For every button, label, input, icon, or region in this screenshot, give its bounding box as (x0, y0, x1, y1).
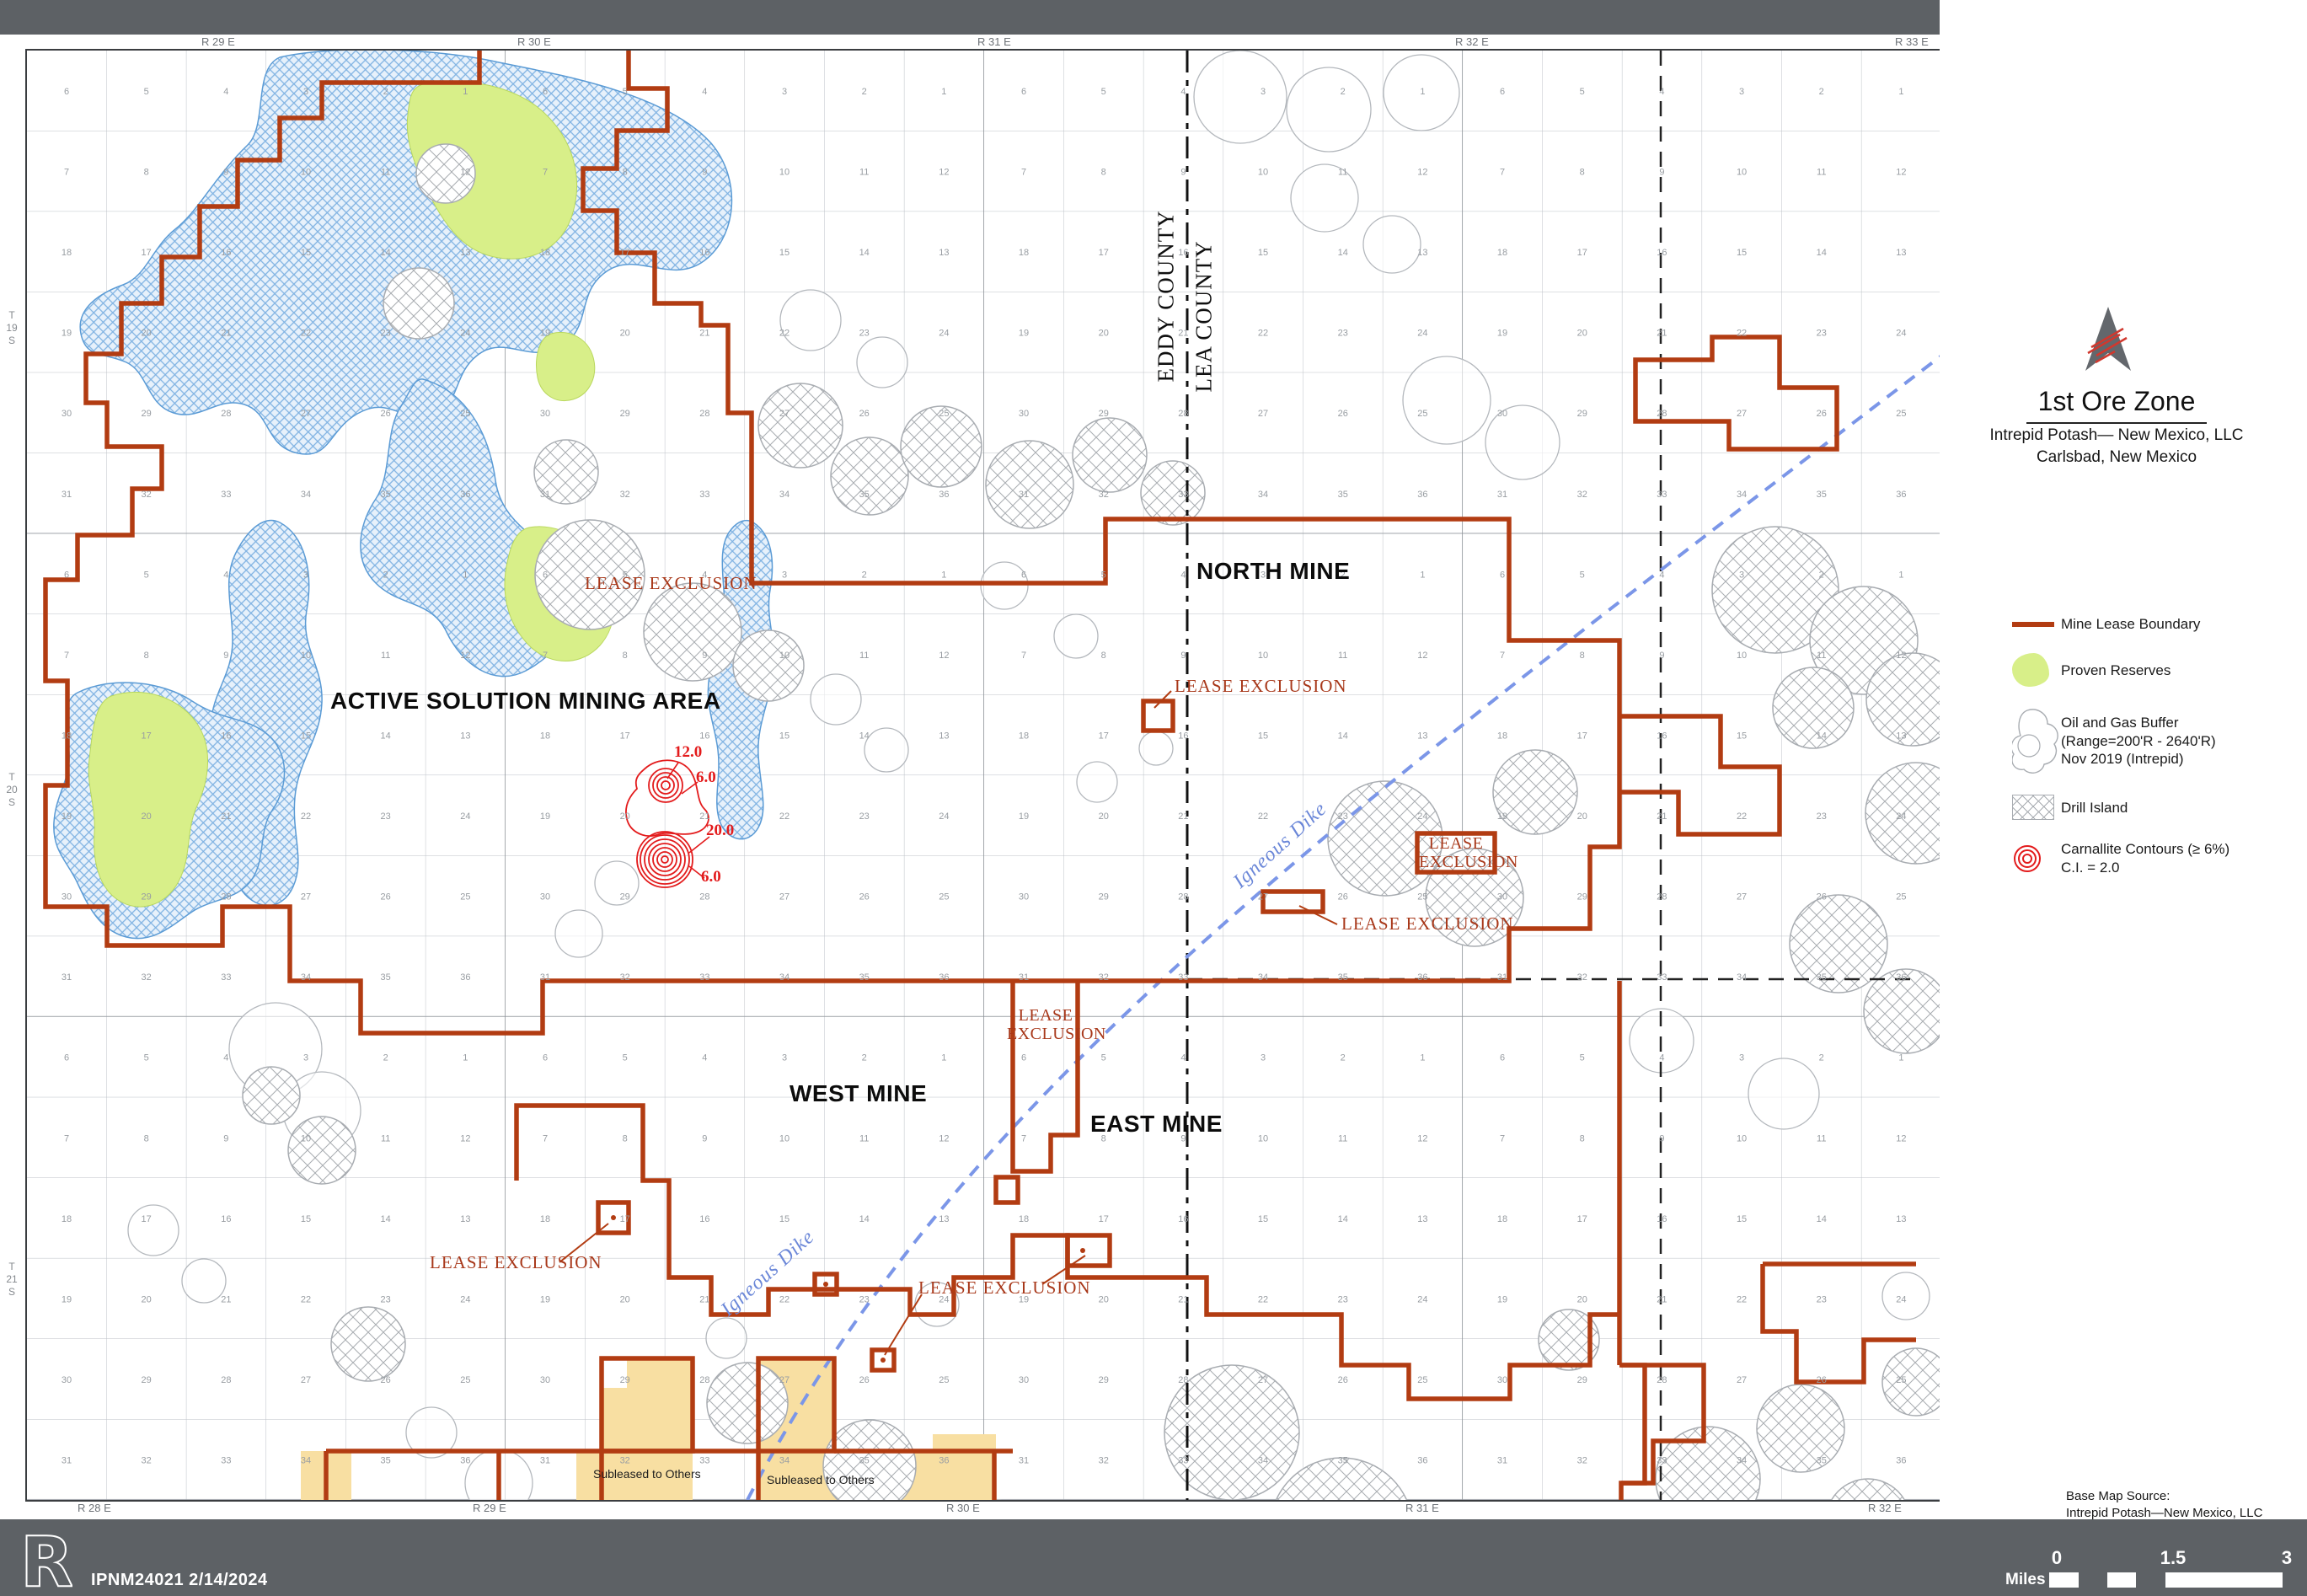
section-number: 34 (301, 490, 311, 500)
section-number: 36 (460, 972, 470, 983)
section-number: 22 (779, 1294, 790, 1304)
section-number: 31 (1497, 1456, 1507, 1466)
section-number: 26 (381, 409, 391, 419)
section-number: 30 (1019, 409, 1029, 419)
section-number: 20 (620, 1294, 630, 1304)
section-number: 22 (301, 329, 311, 339)
range-label: R 29 E (201, 35, 235, 48)
section-number: 21 (221, 1294, 231, 1304)
section-number: 5 (1101, 1053, 1106, 1063)
section-number: 27 (779, 1375, 790, 1385)
section-number: 33 (1657, 972, 1667, 983)
legend-item-drill-island: Drill Island (2012, 795, 2290, 820)
section-number: 28 (1657, 892, 1667, 902)
section-number: 11 (1817, 168, 1826, 178)
section-number: 16 (1657, 1214, 1667, 1224)
section-number: 25 (1417, 1375, 1427, 1385)
section-number: 11 (381, 168, 390, 178)
section-number: 10 (1258, 168, 1268, 178)
section-number: 12 (1417, 651, 1427, 661)
section-number: 29 (1099, 409, 1109, 419)
section-number: 5 (623, 1053, 628, 1063)
map-title: 1st Ore Zone (1940, 386, 2294, 424)
section-number: 32 (1577, 972, 1587, 983)
section-number: 36 (939, 490, 949, 500)
section-number: 22 (779, 811, 790, 822)
section-number: 23 (859, 329, 870, 339)
section-number: 10 (1258, 1133, 1268, 1143)
base-map-source-line1: Base Map Source: (2066, 1488, 2262, 1505)
section-number: 25 (1896, 1375, 1906, 1385)
section-number: 15 (1258, 248, 1268, 258)
section-number: 36 (1417, 490, 1427, 500)
section-number: 31 (62, 972, 72, 983)
section-number: 35 (1338, 1456, 1348, 1466)
section-number: 12 (1417, 1133, 1427, 1143)
section-number: 21 (221, 329, 231, 339)
section-number: 29 (142, 409, 152, 419)
section-number: 16 (699, 731, 709, 741)
range-label: R 32 E (1868, 1502, 1902, 1514)
range-label: R 29 E (473, 1502, 506, 1514)
section-number: 18 (1019, 1214, 1029, 1224)
section-number: 17 (620, 731, 630, 741)
label-lease-exclusion-5: LEASE EXCLUSION (1007, 1007, 1084, 1043)
section-number: 13 (1417, 248, 1427, 258)
section-number: 30 (1497, 892, 1507, 902)
oil-gas-buffer (1054, 614, 1098, 658)
section-number: 23 (381, 811, 391, 822)
section-number: 17 (620, 248, 630, 258)
legend: Mine Lease Boundary Proven Reserves Oil … (2012, 615, 2290, 897)
section-number: 20 (1099, 329, 1109, 339)
section-number: 35 (1338, 972, 1348, 983)
section-number: 23 (1338, 811, 1348, 822)
section-number: 22 (301, 1294, 311, 1304)
section-number: 18 (1497, 731, 1507, 741)
section-number: 20 (1099, 1294, 1109, 1304)
section-number: 10 (1737, 1133, 1747, 1143)
section-number: 12 (1417, 168, 1427, 178)
section-number: 24 (939, 811, 949, 822)
section-number: 34 (1737, 1456, 1747, 1466)
legend-label-line: (Range=200'R - 2640'R) (2061, 732, 2216, 750)
section-number: 29 (1577, 892, 1587, 902)
map-sheet: R 29 ER 30 ER 31 ER 32 ER 33 E R 28 ER 2… (0, 0, 2307, 1596)
section-number: 21 (1657, 811, 1667, 822)
section-number: 30 (1019, 892, 1029, 902)
section-number: 27 (301, 1375, 311, 1385)
section-number: 6 (64, 1053, 69, 1063)
section-number: 16 (1657, 248, 1667, 258)
carnallite-swatch (2012, 844, 2061, 874)
section-number: 4 (1180, 570, 1186, 580)
section-number: 9 (223, 168, 228, 178)
section-number: 5 (144, 87, 149, 97)
section-number: 36 (1896, 490, 1906, 500)
section-number: 14 (1817, 1214, 1827, 1224)
section-number: 31 (1019, 972, 1029, 983)
section-number: 2 (1341, 1053, 1346, 1063)
section-number: 7 (543, 1133, 548, 1143)
section-number: 9 (1180, 651, 1186, 661)
section-number: 7 (64, 168, 69, 178)
section-number: 27 (1737, 892, 1747, 902)
section-number: 6 (1021, 1053, 1026, 1063)
section-number: 16 (1178, 1214, 1188, 1224)
oil-gas-buffer (811, 674, 861, 725)
bottom-border-bar (0, 1519, 2307, 1596)
section-number: 33 (221, 490, 231, 500)
section-number: 27 (301, 409, 311, 419)
section-number: 4 (223, 1053, 228, 1063)
section-number: 32 (620, 490, 630, 500)
section-number: 31 (540, 972, 550, 983)
section-number: 8 (1101, 168, 1106, 178)
section-number: 20 (620, 329, 630, 339)
drill-island (1773, 667, 1854, 748)
label-lease-exclusion-2: LEASE EXCLUSION (1175, 676, 1347, 697)
section-number: 32 (142, 490, 152, 500)
section-number: 20 (620, 811, 630, 822)
section-number: 29 (620, 892, 630, 902)
oil-gas-buffer (128, 1205, 179, 1256)
section-number: 24 (460, 1294, 470, 1304)
section-number: 8 (1580, 1133, 1585, 1143)
mine-lease-boundary-swatch (2012, 622, 2061, 627)
lease-exclusion-line1: LEASE (1419, 835, 1493, 854)
legend-label: Mine Lease Boundary (2061, 615, 2200, 633)
section-number: 29 (1577, 409, 1587, 419)
section-number: 32 (1099, 1456, 1109, 1466)
section-number: 31 (1019, 1456, 1029, 1466)
section-number: 19 (62, 1294, 72, 1304)
drill-island (1882, 1348, 1941, 1416)
section-number: 10 (779, 651, 790, 661)
section-number: 30 (1019, 1375, 1029, 1385)
section-number: 23 (1338, 329, 1348, 339)
section-number: 30 (540, 892, 550, 902)
section-number: 16 (221, 1214, 231, 1224)
oil-gas-buffer-swatch (2012, 707, 2061, 774)
section-number: 23 (1817, 1294, 1827, 1304)
section-number: 27 (1258, 409, 1268, 419)
section-number: 2 (1819, 87, 1824, 97)
section-number: 17 (142, 248, 152, 258)
section-number: 11 (381, 1133, 390, 1143)
oil-gas-buffer (1194, 51, 1287, 143)
section-number: 28 (221, 1375, 231, 1385)
section-number: 18 (1019, 731, 1029, 741)
section-number: 36 (1896, 1456, 1906, 1466)
section-number: 27 (779, 409, 790, 419)
label-carnallite-20: 20.0 (706, 822, 734, 840)
section-number: 32 (142, 972, 152, 983)
section-number: 36 (939, 1456, 949, 1466)
section-number: 3 (303, 87, 308, 97)
section-number: 12 (939, 651, 949, 661)
section-number: 21 (699, 811, 709, 822)
range-labels-bottom: R 28 ER 29 ER 30 ER 31 ER 32 E (25, 1502, 1940, 1515)
section-number: 6 (1021, 570, 1026, 580)
section-number: 19 (62, 329, 72, 339)
section-number: 14 (859, 731, 870, 741)
section-number: 28 (1178, 892, 1188, 902)
range-labels-top: R 29 ER 30 ER 31 ER 32 ER 33 E (25, 35, 1940, 48)
section-number: 22 (1737, 811, 1747, 822)
section-number: 1 (1898, 1053, 1903, 1063)
section-number: 30 (540, 1375, 550, 1385)
drill-island (1790, 895, 1887, 993)
section-number: 9 (1659, 651, 1664, 661)
section-number: 1 (1898, 570, 1903, 580)
section-number: 21 (1657, 329, 1667, 339)
section-number: 18 (1497, 1214, 1507, 1224)
section-number: 20 (142, 1294, 152, 1304)
label-subleased-2: Subleased to Others (767, 1473, 875, 1486)
section-number: 12 (1896, 651, 1906, 661)
section-number: 7 (1021, 168, 1026, 178)
label-active-solution-mining-area: ACTIVE SOLUTION MINING AREA (330, 688, 721, 715)
section-number: 6 (543, 87, 548, 97)
section-number: 33 (1178, 972, 1188, 983)
section-number: 36 (460, 1456, 470, 1466)
section-number: 6 (1021, 87, 1026, 97)
oil-gas-buffer (1291, 164, 1358, 232)
section-number: 10 (779, 168, 790, 178)
section-number: 5 (144, 1053, 149, 1063)
legend-item-oil-gas-buffer: Oil and Gas Buffer (Range=200'R - 2640'R… (2012, 707, 2290, 774)
section-number: 8 (623, 1133, 628, 1143)
section-number: 13 (939, 1214, 949, 1224)
drill-island (644, 583, 741, 681)
section-number: 24 (1417, 1294, 1427, 1304)
drill-island (383, 268, 454, 339)
section-number: 3 (1261, 87, 1266, 97)
section-number: 35 (1338, 490, 1348, 500)
section-number: 34 (1258, 972, 1268, 983)
section-number: 26 (1817, 1375, 1827, 1385)
section-number: 18 (540, 731, 550, 741)
map-title-text: 1st Ore Zone (2026, 386, 2208, 424)
township-label: T19S (1, 309, 23, 347)
section-number: 12 (1896, 1133, 1906, 1143)
legend-label-line: Oil and Gas Buffer (2061, 714, 2216, 731)
section-number: 27 (1258, 1375, 1268, 1385)
drill-island (986, 441, 1073, 528)
section-number: 18 (1019, 248, 1029, 258)
section-number: 33 (699, 1456, 709, 1466)
section-number: 25 (460, 409, 470, 419)
section-number: 32 (1577, 490, 1587, 500)
section-number: 10 (1737, 168, 1747, 178)
section-number: 16 (1178, 731, 1188, 741)
section-number: 10 (1737, 651, 1747, 661)
section-number: 19 (540, 329, 550, 339)
section-number: 18 (62, 248, 72, 258)
section-number: 32 (1099, 972, 1109, 983)
section-number: 7 (1500, 1133, 1505, 1143)
label-carnallite-12: 12.0 (674, 743, 702, 762)
oil-gas-buffer (555, 910, 602, 957)
section-number: 34 (1258, 1456, 1268, 1466)
section-number: 12 (939, 1133, 949, 1143)
section-number: 13 (1896, 1214, 1906, 1224)
legend-item-carnallite: Carnallite Contours (≥ 6%) C.I. = 2.0 (2012, 840, 2290, 876)
oil-gas-buffer (182, 1259, 226, 1303)
oil-gas-buffer (1403, 356, 1491, 444)
section-number: 8 (1101, 651, 1106, 661)
section-number: 17 (1099, 731, 1109, 741)
section-number: 14 (1817, 248, 1827, 258)
section-number: 17 (1577, 731, 1587, 741)
section-number: 24 (1417, 329, 1427, 339)
section-number: 25 (460, 1375, 470, 1385)
section-number: 34 (779, 490, 790, 500)
section-number: 5 (1580, 1053, 1585, 1063)
section-number: 23 (1817, 811, 1827, 822)
section-number: 18 (1497, 248, 1507, 258)
section-number: 1 (1420, 570, 1425, 580)
section-number: 11 (1338, 168, 1347, 178)
section-number: 10 (301, 1133, 311, 1143)
section-number: 26 (381, 892, 391, 902)
section-number: 13 (460, 248, 470, 258)
section-number: 12 (939, 168, 949, 178)
section-number: 14 (381, 731, 391, 741)
section-number: 15 (301, 1214, 311, 1224)
legend-item-mine-lease-boundary: Mine Lease Boundary (2012, 615, 2290, 633)
section-number: 33 (1657, 490, 1667, 500)
section-number: 1 (1420, 1053, 1425, 1063)
section-number: 16 (221, 731, 231, 741)
range-label: R 28 E (78, 1502, 111, 1514)
section-number: 14 (1338, 1214, 1348, 1224)
section-number: 4 (223, 570, 228, 580)
range-label: R 31 E (977, 35, 1011, 48)
section-number: 25 (939, 892, 949, 902)
section-number: 35 (859, 972, 870, 983)
range-label: R 30 E (517, 35, 551, 48)
section-number: 7 (543, 168, 548, 178)
range-label: R 30 E (946, 1502, 980, 1514)
section-number: 15 (779, 1214, 790, 1224)
section-number: 33 (221, 1456, 231, 1466)
section-number: 3 (1739, 87, 1744, 97)
section-number: 29 (620, 1375, 630, 1385)
section-number: 30 (62, 1375, 72, 1385)
range-label: R 32 E (1455, 35, 1489, 48)
section-number: 33 (221, 972, 231, 983)
section-number: 2 (1341, 87, 1346, 97)
section-number: 13 (1896, 248, 1906, 258)
section-number: 18 (540, 1214, 550, 1224)
scale-tick-0: 0 (2052, 1547, 2062, 1569)
township-label: T21S (1, 1261, 23, 1299)
legend-label: Carnallite Contours (≥ 6%) C.I. = 2.0 (2061, 840, 2229, 876)
oil-gas-buffer (1287, 67, 1371, 152)
lease-exclusion-line1: LEASE (1007, 1007, 1084, 1026)
oil-gas-buffer (857, 337, 907, 388)
section-number: 30 (62, 892, 72, 902)
range-label: R 31 E (1405, 1502, 1439, 1514)
section-number: 19 (1019, 329, 1029, 339)
section-number: 35 (1817, 490, 1827, 500)
section-number: 28 (1178, 409, 1188, 419)
section-number: 5 (1101, 87, 1106, 97)
label-west-mine: WEST MINE (790, 1080, 927, 1107)
section-number: 19 (1497, 329, 1507, 339)
section-number: 15 (301, 248, 311, 258)
section-number: 6 (1500, 87, 1505, 97)
section-number: 36 (1417, 972, 1427, 983)
section-number: 17 (142, 1214, 152, 1224)
section-number: 15 (779, 731, 790, 741)
drill-island (243, 1067, 300, 1124)
section-number: 26 (859, 409, 870, 419)
section-number: 29 (142, 892, 152, 902)
section-number: 9 (1659, 1133, 1664, 1143)
section-number: 12 (460, 168, 470, 178)
section-number: 28 (699, 1375, 709, 1385)
oil-gas-buffer (1748, 1058, 1819, 1129)
section-number: 15 (779, 248, 790, 258)
section-number: 24 (460, 811, 470, 822)
section-number: 20 (1577, 329, 1587, 339)
section-number: 7 (543, 651, 548, 661)
section-number: 14 (381, 1214, 391, 1224)
section-number: 35 (381, 490, 391, 500)
drill-island (831, 437, 908, 515)
section-number: 25 (939, 1375, 949, 1385)
section-number: 22 (1737, 1294, 1747, 1304)
section-number: 2 (862, 570, 867, 580)
section-number: 35 (859, 1456, 870, 1466)
section-number: 11 (859, 168, 869, 178)
section-number: 3 (782, 87, 787, 97)
section-number: 1 (941, 87, 946, 97)
section-number: 12 (1896, 168, 1906, 178)
section-number: 23 (859, 1294, 870, 1304)
section-number: 34 (1258, 490, 1268, 500)
section-number: 17 (1099, 248, 1109, 258)
scale-unit: Miles (2005, 1571, 2046, 1589)
section-number: 11 (381, 651, 390, 661)
section-number: 21 (1657, 1294, 1667, 1304)
section-number: 11 (859, 651, 869, 661)
scale-bar: 0 1.5 3 Miles (2005, 1547, 2292, 1589)
section-number: 29 (620, 409, 630, 419)
section-number: 33 (1657, 1456, 1667, 1466)
section-number: 18 (540, 248, 550, 258)
label-lease-exclusion-6: LEASE EXCLUSION (430, 1252, 602, 1273)
section-number: 31 (62, 1456, 72, 1466)
section-number: 35 (1817, 972, 1827, 983)
section-number: 13 (460, 1214, 470, 1224)
section-number: 36 (1417, 1456, 1427, 1466)
section-number: 17 (1099, 1214, 1109, 1224)
section-number: 26 (859, 1375, 870, 1385)
label-lease-exclusion-1: LEASE EXCLUSION (585, 573, 757, 594)
legend-label-line: Nov 2019 (Intrepid) (2061, 750, 2216, 768)
section-number: 32 (620, 1456, 630, 1466)
section-number: 19 (1497, 1294, 1507, 1304)
label-east-mine: EAST MINE (1090, 1111, 1223, 1138)
section-number: 30 (62, 409, 72, 419)
title-legend-panel: 1st Ore Zone Intrepid Potash— New Mexico… (1940, 0, 2307, 1519)
legend-label-line: Carnallite Contours (≥ 6%) (2061, 840, 2229, 858)
section-number: 19 (540, 811, 550, 822)
